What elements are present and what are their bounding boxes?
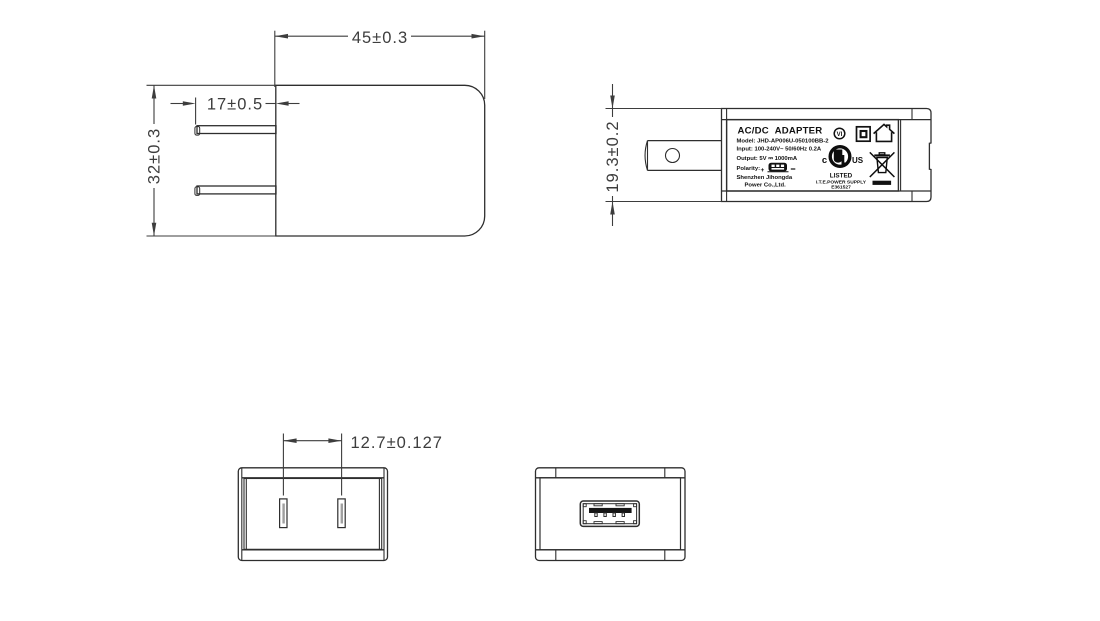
svg-text:VI: VI [837,132,843,138]
svg-text:c: c [822,155,827,166]
svg-text:Output: 5V ⎓ 1000mA: Output: 5V ⎓ 1000mA [737,156,798,162]
svg-text:E361527: E361527 [831,185,851,191]
svg-text:12.7±0.127: 12.7±0.127 [351,434,443,452]
svg-text:Shenzhen Jihongda: Shenzhen Jihongda [737,175,793,181]
svg-text:Model: JHD-AP006U-050100BB-2: Model: JHD-AP006U-050100BB-2 [737,139,830,145]
svg-text:45±0.3: 45±0.3 [352,29,408,47]
svg-text:Input: 100-240V~ 50/60Hz 0.2: Input: 100-240V~ 50/60Hz 0.2A [737,147,822,153]
svg-text:32±0.3: 32±0.3 [146,128,164,184]
svg-text:US: US [852,156,864,165]
svg-text:17±0.5: 17±0.5 [207,95,263,113]
svg-text:Polarity:: Polarity: [737,166,761,172]
svg-text:LISTED: LISTED [830,172,853,179]
svg-text:I.T.E.POWER SUPPLY: I.T.E.POWER SUPPLY [816,179,867,185]
svg-text:Power Co.,Ltd.: Power Co.,Ltd. [745,183,787,189]
svg-text:19.3±0.2: 19.3±0.2 [604,120,622,192]
svg-text:AC/DC ADAPTER: AC/DC ADAPTER [738,125,823,136]
svg-text:+: + [761,167,765,174]
